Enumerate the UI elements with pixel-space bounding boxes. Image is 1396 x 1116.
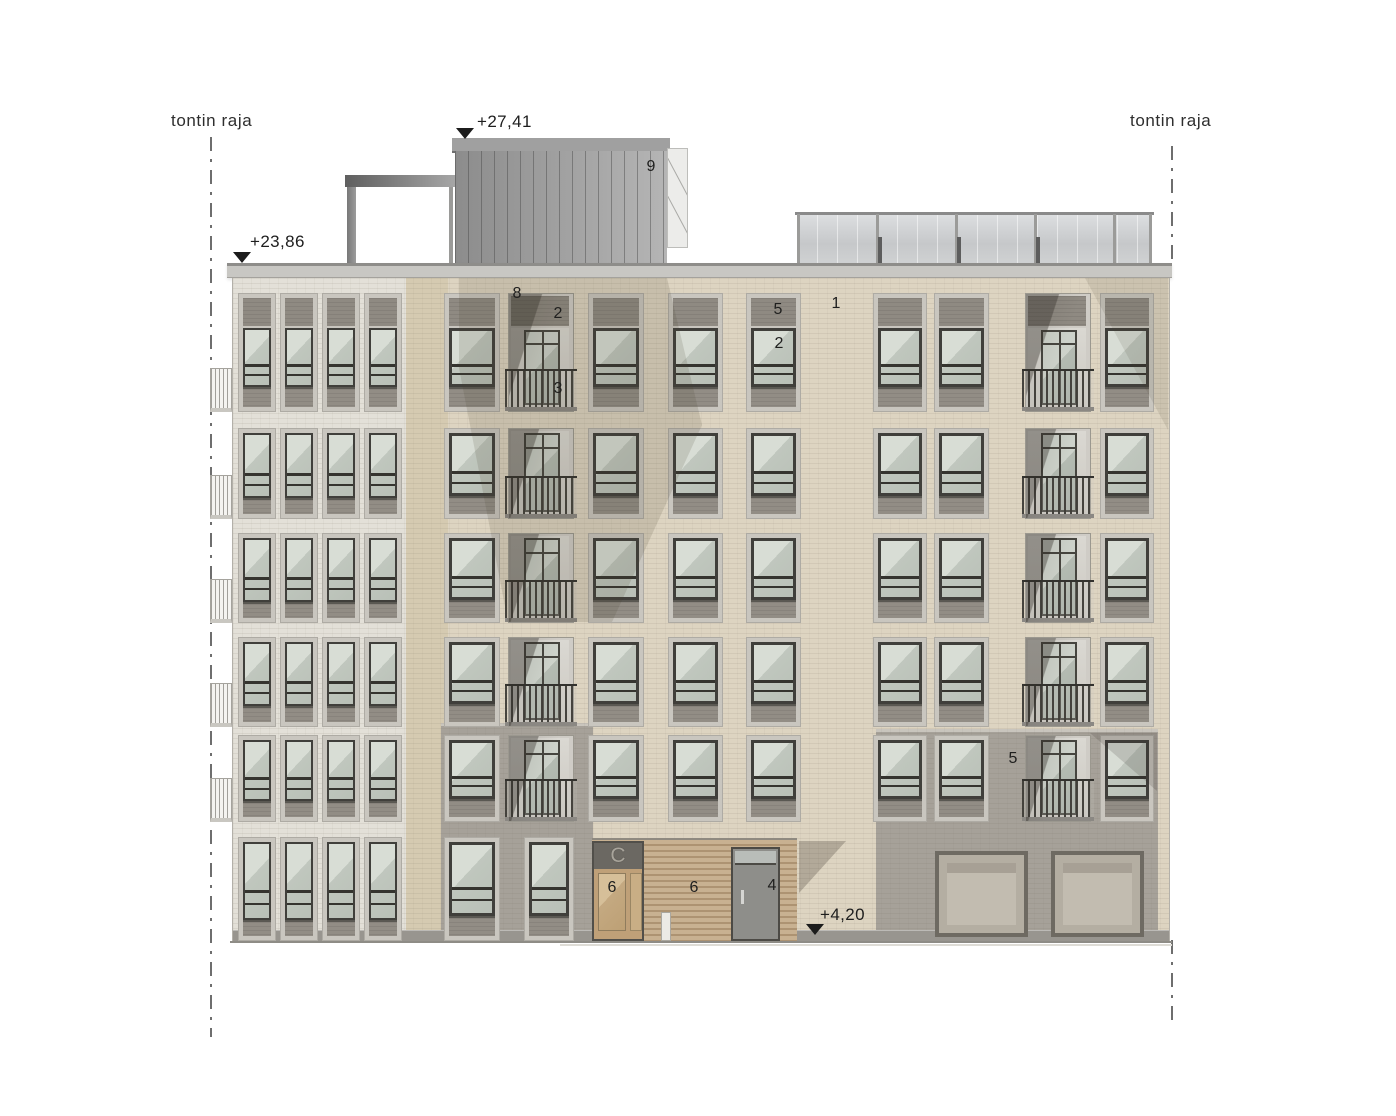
window-spandrel-panel (285, 387, 313, 407)
window-spandrel-panel (449, 387, 495, 407)
narrow-window (322, 428, 360, 519)
window-transom-bar (371, 777, 395, 780)
window-spandrel-panel (449, 600, 495, 618)
narrow-window (280, 533, 318, 623)
window-frame (327, 642, 355, 706)
window-spandrel-panel (939, 799, 984, 817)
elevation-marker-text: +23,86 (250, 232, 305, 252)
window-spandrel-panel (369, 387, 397, 407)
window-spandrel-panel (449, 496, 495, 514)
window-transom-bar (676, 776, 715, 779)
window (1100, 428, 1154, 519)
window-transom-bar (329, 890, 353, 893)
window-spandrel-panel (285, 920, 313, 936)
entrance-sign-letter: C (594, 843, 642, 869)
window-sill-bar (754, 690, 793, 692)
side-balcony-railing (210, 683, 232, 727)
narrow-window (364, 637, 402, 727)
window-transom-bar (881, 471, 919, 474)
window-frame (593, 538, 639, 600)
window-spandrel-panel (285, 706, 313, 722)
window-spandrel-panel (285, 498, 313, 514)
window-sill-bar (245, 788, 269, 790)
window-transom-bar (452, 364, 492, 367)
window-frame (285, 740, 313, 801)
window-frame (1105, 328, 1149, 387)
window-top-brick-panel (593, 298, 639, 326)
window-spandrel-panel (593, 704, 639, 722)
elevation-marker-triangle-icon (233, 252, 251, 263)
window-transom-bar (754, 680, 793, 683)
window-frame (285, 433, 313, 498)
window-transom-bar (245, 577, 269, 580)
window (934, 735, 989, 822)
railing-post (797, 214, 800, 263)
window-spandrel-panel (369, 498, 397, 514)
window-frame (751, 642, 796, 704)
recessed-balcony (508, 293, 574, 412)
window-transom-bar (329, 473, 353, 476)
window-sill-bar (245, 374, 269, 376)
appendage-diagonal-brace (667, 194, 688, 237)
balcony-shade (1026, 736, 1090, 821)
window-frame (243, 642, 271, 706)
narrow-window (364, 837, 402, 941)
window-transom-bar (881, 680, 919, 683)
elevation-marker-triangle-icon (806, 924, 824, 935)
window (746, 428, 801, 519)
window-frame (878, 740, 922, 799)
window-spandrel-panel (939, 600, 984, 618)
window-transom-bar (371, 681, 395, 684)
window (668, 293, 723, 412)
window-frame (369, 433, 397, 498)
facade-material-number: 4 (768, 877, 777, 895)
facade-material-number: 8 (513, 285, 522, 303)
window (746, 533, 801, 623)
window-spandrel-panel (939, 704, 984, 722)
facade-material-number: 9 (647, 158, 656, 176)
window-transom-bar (245, 890, 269, 893)
window-transom-bar (1108, 776, 1146, 779)
narrow-window (364, 428, 402, 519)
balcony-shade (1026, 294, 1090, 411)
window-frame (1105, 433, 1149, 496)
facade-material-number: 2 (775, 335, 784, 353)
window-transom-bar (245, 473, 269, 476)
garage-door (935, 851, 1028, 937)
window-transom-bar (881, 776, 919, 779)
window-frame (327, 328, 355, 387)
narrow-window (238, 837, 276, 941)
railing-post (1149, 214, 1152, 263)
window (588, 637, 644, 727)
window-frame (327, 842, 355, 920)
narrow-window (322, 837, 360, 941)
window-frame (751, 328, 796, 387)
window-sill-bar (676, 586, 715, 588)
window-transom-bar (371, 473, 395, 476)
narrow-window (280, 428, 318, 519)
window-spandrel-panel (1105, 704, 1149, 722)
railing-post (1113, 214, 1116, 263)
window-frame (285, 538, 313, 602)
window-sill-bar (676, 373, 715, 375)
window-transom-bar (754, 776, 793, 779)
window (444, 533, 500, 623)
window-sill-bar (942, 482, 981, 484)
window-sill-bar (881, 586, 919, 588)
window-sill-bar (245, 903, 269, 905)
window (444, 735, 500, 822)
window-frame (243, 538, 271, 602)
window-transom-bar (287, 364, 311, 367)
window-frame (939, 538, 984, 600)
window-frame (593, 433, 639, 496)
window-frame (1105, 740, 1149, 799)
window (588, 293, 644, 412)
narrow-window (322, 293, 360, 412)
window-transom-bar (329, 364, 353, 367)
window-sill-bar (881, 482, 919, 484)
ground-line (230, 941, 1172, 943)
window-frame (369, 642, 397, 706)
recessed-balcony (508, 637, 574, 727)
window-transom-bar (371, 890, 395, 893)
window-spandrel-panel (593, 799, 639, 817)
window-frame (673, 642, 718, 704)
facade-material-number: 2 (554, 305, 563, 323)
window-top-brick-panel (878, 298, 922, 326)
window (1100, 533, 1154, 623)
window-sill-bar (371, 788, 395, 790)
window-spandrel-panel (939, 387, 984, 407)
recessed-balcony (508, 428, 574, 519)
window-frame (369, 538, 397, 602)
window-sill-bar (942, 373, 981, 375)
window-transom-bar (452, 887, 492, 890)
parapet-band (227, 263, 1172, 278)
window-spandrel-panel (327, 706, 355, 722)
window-sill-bar (1108, 586, 1146, 588)
balcony-shade (509, 534, 573, 622)
window-frame (593, 740, 639, 799)
narrow-window (280, 293, 318, 412)
window-frame (449, 328, 495, 387)
window-frame (369, 842, 397, 920)
side-balcony-railing (210, 579, 232, 623)
window-frame (243, 740, 271, 801)
window-frame (285, 842, 313, 920)
window-transom-bar (881, 576, 919, 579)
window-transom-bar (676, 471, 715, 474)
window (1100, 637, 1154, 727)
window-frame (327, 538, 355, 602)
window-transom-bar (754, 471, 793, 474)
window-frame (751, 740, 796, 799)
window-frame (878, 433, 922, 496)
narrow-window (238, 533, 276, 623)
window (588, 735, 644, 822)
window (746, 735, 801, 822)
window-sill-bar (371, 692, 395, 694)
window-sill-bar (676, 690, 715, 692)
window-sill-bar (881, 785, 919, 787)
window-spandrel-panel (243, 387, 271, 407)
roof-glass-railing (797, 212, 1152, 263)
narrow-window (238, 428, 276, 519)
narrow-window (322, 533, 360, 623)
window-transom-bar (754, 576, 793, 579)
garage-door-panel (947, 863, 1016, 925)
window-frame (878, 642, 922, 704)
window-transom-bar (452, 680, 492, 683)
elevation-drawing-canvas: tontin raja tontin raja C +27,41+23,86+4… (0, 0, 1396, 1116)
window-frame (529, 842, 569, 916)
narrow-window (322, 735, 360, 822)
appendage-diagonal-brace (667, 156, 688, 199)
window-spandrel-panel (449, 916, 495, 936)
window (524, 837, 574, 941)
window-spandrel-panel (449, 704, 495, 722)
window-transom-bar (532, 887, 566, 890)
window (444, 293, 500, 412)
window-spandrel-panel (243, 706, 271, 722)
window (444, 428, 500, 519)
window-spandrel-panel (878, 799, 922, 817)
window-frame (878, 538, 922, 600)
window-transom-bar (596, 364, 636, 367)
window-sill-bar (676, 785, 715, 787)
window-frame (673, 538, 718, 600)
balcony-shade (1026, 429, 1090, 518)
window-sill-bar (754, 785, 793, 787)
window-frame (449, 740, 495, 799)
window-sill-bar (596, 482, 636, 484)
window-spandrel-panel (327, 801, 355, 817)
window-frame (939, 433, 984, 496)
window-transom-bar (676, 576, 715, 579)
window-frame (243, 842, 271, 920)
window-frame (449, 538, 495, 600)
window-sill-bar (329, 788, 353, 790)
plot-boundary-line (1171, 940, 1173, 1028)
window-sill-bar (371, 374, 395, 376)
window-frame (243, 328, 271, 387)
window-transom-bar (287, 473, 311, 476)
window-sill-bar (881, 373, 919, 375)
window (873, 533, 927, 623)
window (746, 637, 801, 727)
window-transom-bar (1108, 471, 1146, 474)
window-sill-bar (754, 482, 793, 484)
window-transom-bar (452, 776, 492, 779)
window-top-brick-panel (939, 298, 984, 326)
window-sill-bar (329, 903, 353, 905)
railing-glass-panels (797, 215, 1152, 263)
recessed-balcony (1025, 735, 1091, 822)
window-spandrel-panel (593, 387, 639, 407)
window-sill-bar (1108, 690, 1146, 692)
window-spandrel-panel (1105, 799, 1149, 817)
window-frame (285, 642, 313, 706)
door-sidelight (630, 873, 642, 931)
window-frame (673, 433, 718, 496)
penthouse-volume (455, 151, 667, 263)
side-balcony-railing (210, 475, 232, 519)
window-frame (593, 328, 639, 387)
window-spandrel-panel (369, 706, 397, 722)
window (444, 637, 500, 727)
narrow-window (280, 637, 318, 727)
window-sill-bar (287, 374, 311, 376)
window-transom-bar (329, 777, 353, 780)
window-transom-bar (287, 777, 311, 780)
window-spandrel-panel (673, 496, 718, 514)
window-sill-bar (287, 788, 311, 790)
window-spandrel-panel (243, 498, 271, 514)
window-sill-bar (371, 588, 395, 590)
window (934, 428, 989, 519)
narrow-window (322, 637, 360, 727)
window-transom-bar (287, 681, 311, 684)
window-sill-bar (942, 586, 981, 588)
window-transom-bar (329, 577, 353, 580)
window-frame (673, 328, 718, 387)
window-frame (939, 642, 984, 704)
facade-material-number: 3 (554, 380, 563, 398)
window-sill-bar (287, 903, 311, 905)
window-sill-bar (329, 692, 353, 694)
window-sill-bar (942, 690, 981, 692)
window-transom-bar (452, 471, 492, 474)
window-sill-bar (754, 373, 793, 375)
window (668, 533, 723, 623)
balcony-shade (509, 736, 573, 821)
window-spandrel-panel (1105, 600, 1149, 618)
window-spandrel-panel (878, 387, 922, 407)
window-sill-bar (452, 586, 492, 588)
window-frame (1105, 538, 1149, 600)
recessed-balcony (508, 533, 574, 623)
window-transom-bar (676, 364, 715, 367)
window-transom-bar (596, 576, 636, 579)
window-frame (449, 642, 495, 704)
window-frame (673, 740, 718, 799)
narrow-window (364, 533, 402, 623)
window-transom-bar (942, 776, 981, 779)
garage-door (1051, 851, 1144, 937)
window-sill-bar (287, 588, 311, 590)
window-sill-bar (1108, 785, 1146, 787)
window-frame (939, 740, 984, 799)
window-spandrel-panel (369, 602, 397, 618)
ground-shadow-line (560, 944, 1172, 946)
window-sill-bar (371, 903, 395, 905)
door-transom-window (735, 851, 776, 865)
window-spandrel-panel (449, 799, 495, 817)
window-spandrel-panel (751, 704, 796, 722)
window-top-brick-panel (673, 298, 718, 326)
garage-door-panel (1063, 863, 1132, 925)
window-spandrel-panel (751, 799, 796, 817)
window-transom-bar (329, 681, 353, 684)
window-sill-bar (245, 588, 269, 590)
railing-bottom-stub (1036, 237, 1040, 263)
window-transom-bar (1108, 364, 1146, 367)
window-spandrel-panel (327, 498, 355, 514)
window-spandrel-panel (327, 387, 355, 407)
window-frame (327, 433, 355, 498)
narrow-window (280, 837, 318, 941)
entrance-door-c: C (592, 841, 644, 941)
window-spandrel-panel (593, 600, 639, 618)
roof-pergola-beam (345, 175, 458, 187)
window-sill-bar (596, 373, 636, 375)
window-top-brick-panel (285, 298, 313, 326)
window-top-brick-panel (327, 298, 355, 326)
window-sill-bar (245, 484, 269, 486)
window-transom-bar (942, 471, 981, 474)
window-spandrel-panel (243, 920, 271, 936)
facade-material-number: 1 (832, 295, 841, 313)
window (873, 637, 927, 727)
window-sill-bar (287, 692, 311, 694)
balcony-shade (1026, 638, 1090, 726)
plot-boundary-label-right: tontin raja (1130, 111, 1211, 131)
penthouse-side-appendage (667, 148, 688, 248)
narrow-window (238, 735, 276, 822)
window-spandrel-panel (673, 387, 718, 407)
recessed-balcony (1025, 637, 1091, 727)
narrow-window (238, 293, 276, 412)
window-spandrel-panel (878, 704, 922, 722)
window-sill-bar (1108, 373, 1146, 375)
window-frame (878, 328, 922, 387)
window-spandrel-panel (243, 602, 271, 618)
window-frame (751, 433, 796, 496)
facade-material-number: 6 (690, 879, 699, 897)
window-sill-bar (754, 586, 793, 588)
window-spandrel-panel (285, 801, 313, 817)
window-top-brick-panel (243, 298, 271, 326)
window-sill-bar (329, 484, 353, 486)
window-spandrel-panel (369, 801, 397, 817)
window (588, 428, 644, 519)
balcony-shade (509, 294, 573, 411)
window-sill-bar (329, 374, 353, 376)
window-transom-bar (596, 776, 636, 779)
window-transom-bar (596, 471, 636, 474)
window-frame (327, 740, 355, 801)
window-spandrel-panel (673, 799, 718, 817)
window-spandrel-panel (673, 704, 718, 722)
window-spandrel-panel (243, 801, 271, 817)
window-frame (449, 433, 495, 496)
window-transom-bar (881, 364, 919, 367)
window-sill-bar (452, 373, 492, 375)
window-sill-bar (596, 785, 636, 787)
window (1100, 735, 1154, 822)
window-top-brick-panel (1105, 298, 1149, 326)
elevation-marker-text: +27,41 (477, 112, 532, 132)
window-sill-bar (1108, 482, 1146, 484)
window-transom-bar (452, 576, 492, 579)
window (934, 637, 989, 727)
window-transom-bar (371, 577, 395, 580)
plot-boundary-line (1171, 146, 1173, 262)
window (668, 637, 723, 727)
